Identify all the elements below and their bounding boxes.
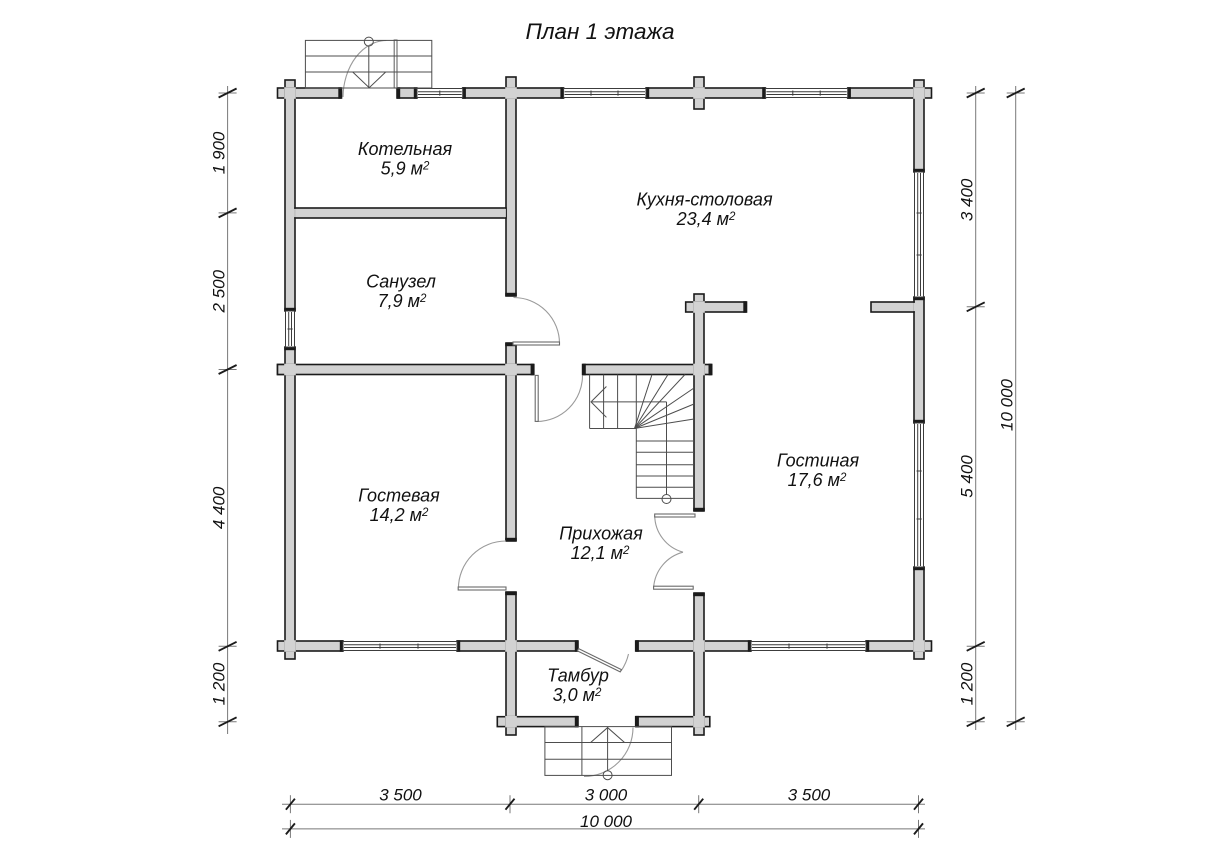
svg-text:Гостевая: Гостевая — [358, 486, 440, 506]
svg-text:1 900: 1 900 — [210, 131, 229, 174]
svg-text:1 200: 1 200 — [210, 662, 229, 705]
svg-text:14,2 м2: 14,2 м2 — [370, 505, 429, 525]
svg-text:2 500: 2 500 — [210, 269, 229, 313]
svg-text:Прихожая: Прихожая — [559, 524, 643, 544]
svg-text:5,9 м2: 5,9 м2 — [381, 159, 430, 179]
svg-text:Гостиная: Гостиная — [777, 451, 860, 471]
svg-text:3,0 м2: 3,0 м2 — [553, 685, 602, 705]
svg-text:5 400: 5 400 — [958, 455, 977, 498]
svg-text:10 000: 10 000 — [998, 378, 1017, 431]
svg-text:Санузел: Санузел — [366, 272, 436, 292]
svg-text:1 200: 1 200 — [958, 662, 977, 705]
svg-text:3 000: 3 000 — [585, 786, 628, 805]
svg-text:10 000: 10 000 — [580, 812, 633, 831]
svg-text:3 400: 3 400 — [958, 178, 977, 221]
svg-text:3 500: 3 500 — [379, 786, 422, 805]
svg-text:17,6 м2: 17,6 м2 — [788, 470, 847, 490]
svg-text:7,9 м2: 7,9 м2 — [378, 291, 427, 311]
svg-text:План 1 этажа: План 1 этажа — [526, 19, 675, 44]
svg-text:4 400: 4 400 — [210, 486, 229, 529]
svg-text:Кухня-столовая: Кухня-столовая — [636, 190, 773, 210]
svg-text:12,1 м2: 12,1 м2 — [571, 543, 630, 563]
svg-text:3 500: 3 500 — [788, 786, 831, 805]
svg-text:23,4 м2: 23,4 м2 — [676, 209, 736, 229]
svg-text:Котельная: Котельная — [358, 139, 453, 159]
svg-text:Тамбур: Тамбур — [547, 666, 609, 686]
